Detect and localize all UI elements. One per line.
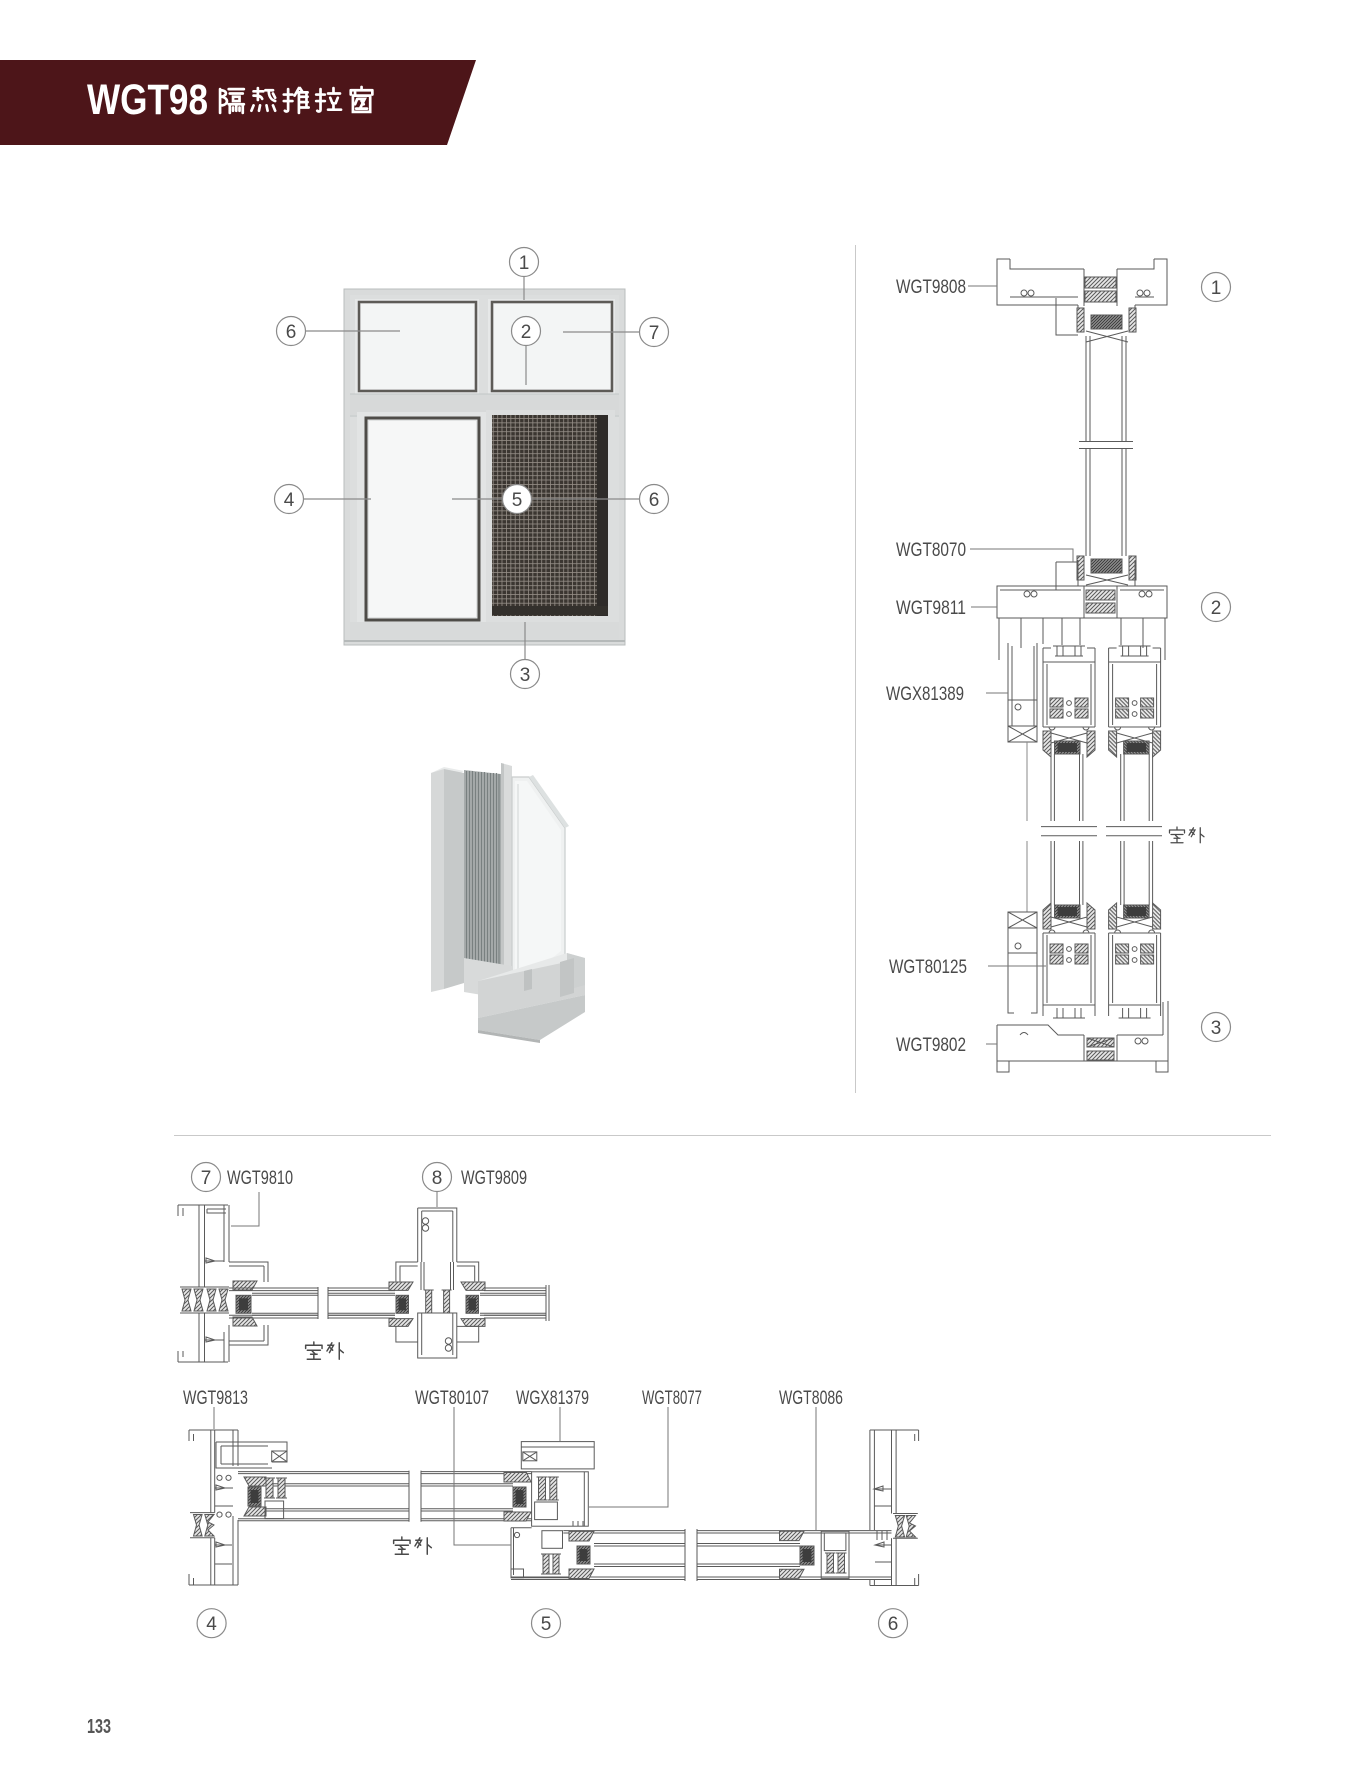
svg-text:6: 6 (888, 1614, 899, 1635)
svg-text:WGT9811: WGT9811 (896, 598, 966, 619)
svg-text:WGX81379: WGX81379 (516, 1388, 589, 1409)
svg-text:WGT80107: WGT80107 (415, 1388, 489, 1409)
svg-text:WGT8077: WGT8077 (642, 1388, 702, 1409)
svg-text:WGT8086: WGT8086 (779, 1388, 843, 1409)
svg-text:5: 5 (512, 490, 523, 511)
svg-text:2: 2 (521, 322, 532, 343)
svg-text:WGT9802: WGT9802 (896, 1035, 966, 1056)
svg-text:WGT9809: WGT9809 (461, 1168, 527, 1189)
svg-text:133: 133 (87, 1716, 111, 1738)
svg-text:WGT9808: WGT9808 (896, 277, 966, 298)
svg-text:7: 7 (649, 323, 660, 344)
svg-text:WGT80125: WGT80125 (889, 957, 967, 978)
svg-text:2: 2 (1211, 598, 1222, 619)
svg-text:WGT98: WGT98 (87, 76, 208, 124)
svg-text:3: 3 (520, 665, 531, 686)
svg-text:WGT8070: WGT8070 (896, 540, 966, 561)
svg-text:1: 1 (1211, 278, 1222, 299)
svg-text:6: 6 (286, 322, 297, 343)
svg-text:5: 5 (541, 1614, 552, 1635)
svg-text:1: 1 (519, 253, 530, 274)
svg-text:4: 4 (284, 490, 295, 511)
svg-text:7: 7 (201, 1168, 212, 1189)
svg-text:3: 3 (1211, 1018, 1222, 1039)
svg-text:WGT9813: WGT9813 (183, 1388, 248, 1409)
svg-text:WGX81389: WGX81389 (886, 684, 964, 705)
svg-text:6: 6 (649, 490, 660, 511)
svg-text:WGT9810: WGT9810 (227, 1168, 293, 1189)
svg-text:8: 8 (432, 1168, 443, 1189)
svg-text:4: 4 (206, 1614, 217, 1635)
